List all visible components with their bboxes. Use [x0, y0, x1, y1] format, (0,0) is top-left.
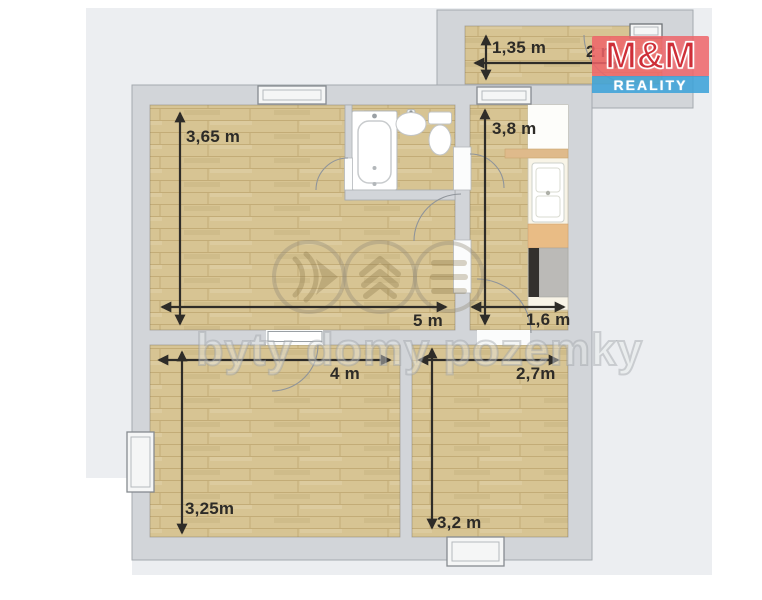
watermark-text: byty domy pozemky	[196, 324, 643, 376]
door-gap-bathroom-kitchen	[454, 147, 472, 190]
dim-label-bedroom-left-height: 3,25m	[185, 499, 234, 519]
dim-label-bedroom-left-width: 4 m	[330, 364, 360, 384]
window-bottom-bedroom	[447, 537, 504, 566]
window-entry-kitchen	[477, 87, 531, 104]
dim-label-entry-height: 1,35 m	[492, 38, 546, 58]
window-top-living	[258, 86, 326, 104]
dim-label-living-width: 5 m	[413, 311, 443, 331]
brand-logo-name: M&M	[592, 36, 709, 77]
toilet-icon	[429, 112, 452, 155]
kitchen-sink-icon	[532, 163, 564, 222]
brand-logo: M&M REALITY	[592, 36, 709, 93]
stove-icon	[529, 248, 569, 297]
door-gap-bathroom	[345, 158, 353, 190]
floorplan-image: byty domy pozemky 1,35 m 2 m 3,65 m 3,8 …	[0, 0, 762, 600]
window-left-bedroom	[127, 432, 154, 492]
bathtub-icon	[352, 111, 397, 190]
dim-label-bedroom-right-height: 3,2 m	[437, 513, 481, 533]
dim-label-kitchen-height: 3,8 m	[492, 119, 536, 139]
brand-logo-tagline: REALITY	[592, 76, 709, 93]
dim-label-living-height: 3,65 m	[186, 127, 240, 147]
dim-label-kitchen-width: 1,6 m	[526, 310, 570, 330]
dim-label-bedroom-right-width: 2,7m	[516, 364, 556, 384]
